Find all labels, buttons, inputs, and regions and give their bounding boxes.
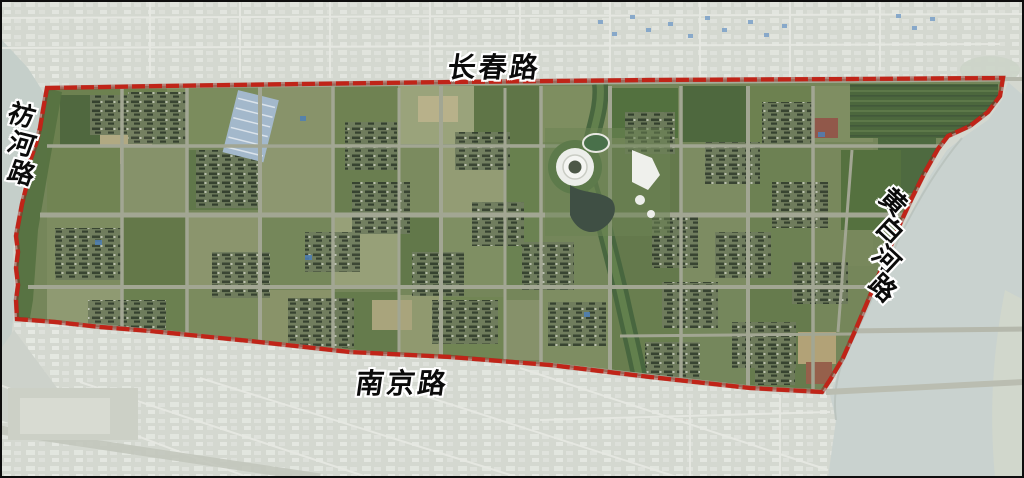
road-label-benghe-lu: 祊河路: [8, 102, 34, 189]
sports-centre: [545, 128, 670, 236]
road-label-changchun-lu: 长春路: [445, 46, 544, 86]
road-label-nanjing-lu: 南京路: [353, 362, 452, 402]
map-figure: 长春路 祊河路 黄白河路 南京路: [0, 0, 1024, 478]
